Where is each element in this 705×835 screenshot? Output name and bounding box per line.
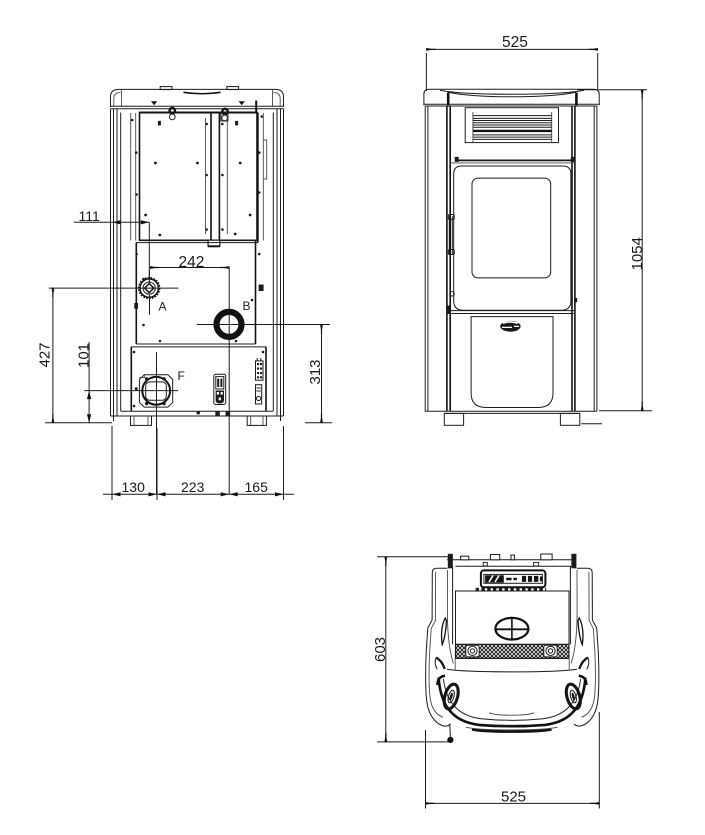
svg-text:130: 130 (122, 479, 146, 495)
svg-text:A: A (159, 300, 167, 314)
svg-text:242: 242 (179, 254, 205, 271)
svg-text:1054: 1054 (629, 237, 646, 270)
svg-text:165: 165 (245, 479, 269, 495)
svg-text:101: 101 (76, 343, 93, 368)
svg-text:111: 111 (79, 208, 100, 224)
svg-text:525: 525 (501, 789, 526, 806)
svg-text:223: 223 (181, 479, 205, 495)
svg-text:525: 525 (502, 34, 528, 51)
svg-text:F: F (178, 369, 185, 383)
svg-text:427: 427 (37, 342, 54, 367)
svg-text:313: 313 (307, 359, 324, 384)
svg-text:603: 603 (372, 637, 389, 662)
svg-text:B: B (243, 299, 251, 313)
